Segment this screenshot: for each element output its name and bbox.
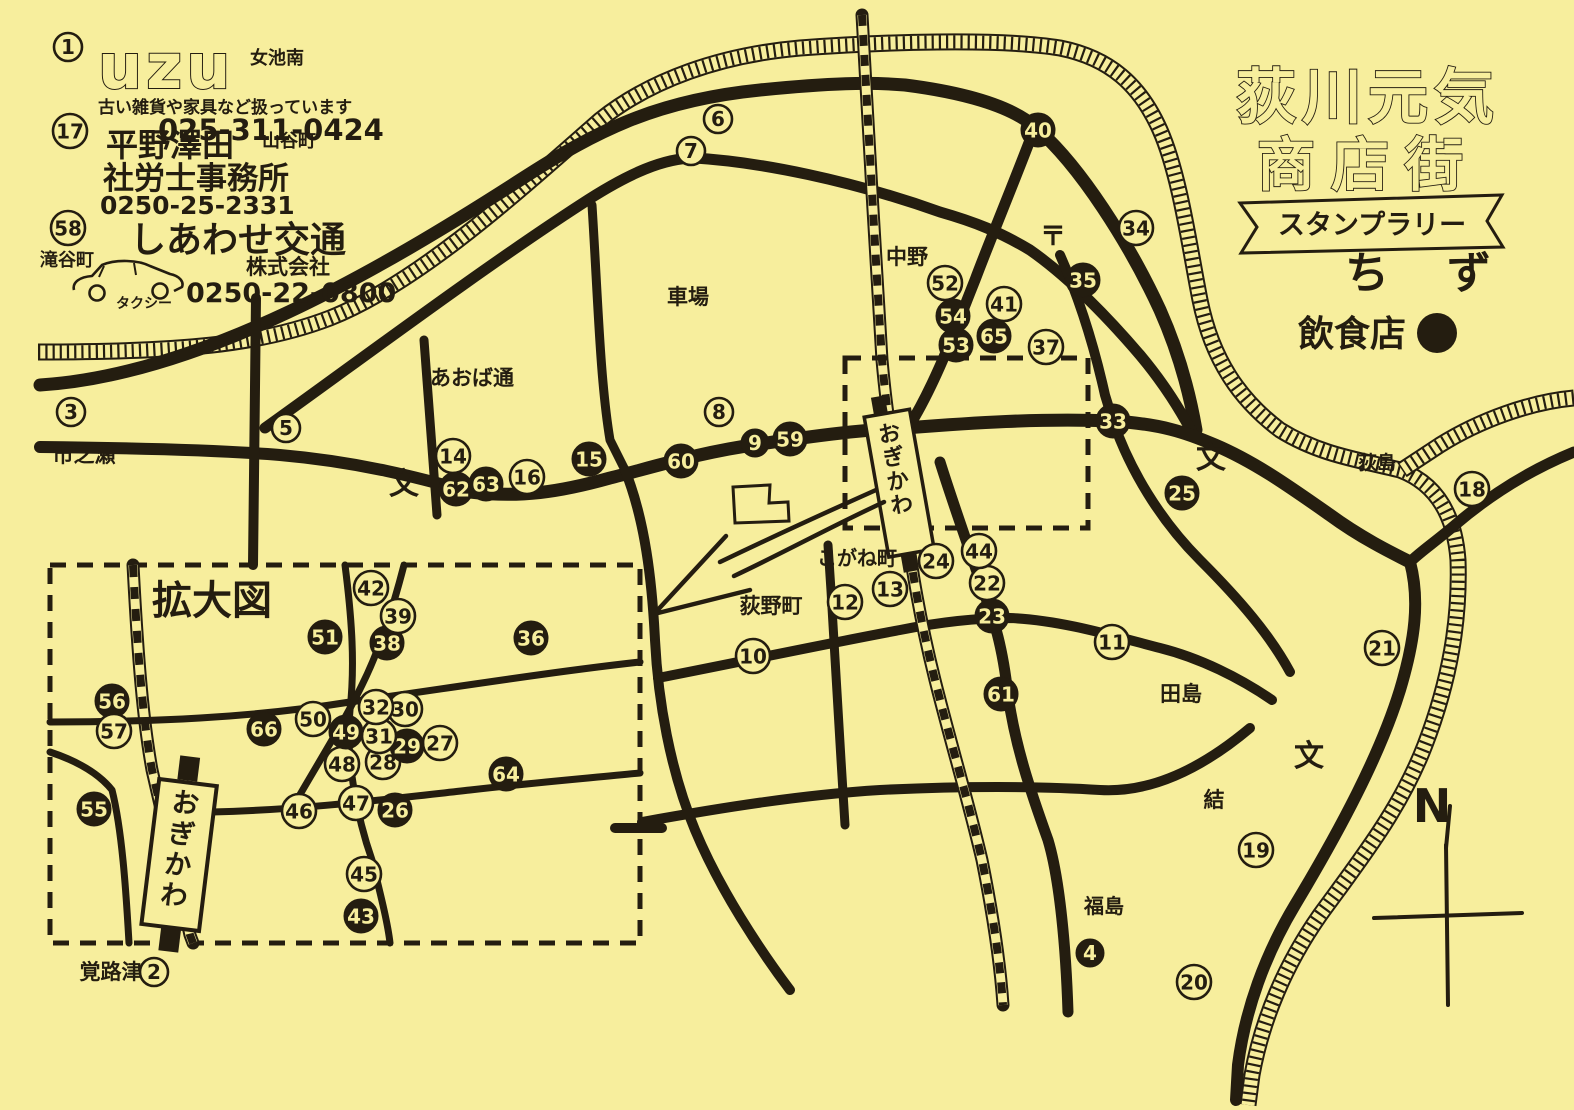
map-marker-26[interactable]: 26 — [378, 793, 412, 827]
place-label-10: 荻島 — [1358, 451, 1396, 474]
map-marker-40[interactable]: 40 — [1021, 113, 1055, 147]
map-marker-11[interactable]: 11 — [1095, 625, 1129, 659]
svg-text:39: 39 — [384, 605, 412, 629]
place-label-0: 市之瀬 — [53, 443, 116, 467]
map-marker-18[interactable]: 18 — [1455, 472, 1489, 506]
map-marker-14[interactable]: 14 — [436, 439, 470, 473]
svg-text:34: 34 — [1122, 217, 1150, 241]
svg-text:25: 25 — [1168, 482, 1196, 506]
svg-text:53: 53 — [942, 334, 970, 358]
svg-text:60: 60 — [667, 450, 695, 474]
map-marker-44[interactable]: 44 — [962, 534, 996, 568]
ad-shiawase-kotsu: しあわせ交通 株式会社 滝谷町 0250-22-0800 タクシー — [40, 219, 396, 312]
svg-text:43: 43 — [347, 905, 375, 929]
svg-text:6: 6 — [711, 107, 725, 131]
legend-label: 飲食店 — [1298, 314, 1406, 355]
svg-text:33: 33 — [1099, 410, 1127, 434]
legend: 飲食店 — [1298, 313, 1457, 355]
svg-text:35: 35 — [1069, 269, 1097, 293]
svg-text:30: 30 — [391, 698, 419, 722]
svg-text:22: 22 — [973, 572, 1001, 596]
ad3-phone: 0250-22-0800 — [186, 278, 396, 309]
place-label-7: 田島 — [1160, 682, 1202, 706]
map-marker-1[interactable]: 1 — [54, 33, 82, 61]
map-marker-17[interactable]: 17 — [53, 114, 87, 148]
svg-text:15: 15 — [575, 448, 603, 472]
svg-text:66: 66 — [250, 718, 278, 742]
map-marker-45[interactable]: 45 — [347, 857, 381, 891]
map-marker-49[interactable]: 49 — [329, 715, 363, 749]
map-marker-7[interactable]: 7 — [677, 137, 705, 165]
svg-text:14: 14 — [439, 445, 467, 469]
building-outline — [733, 485, 789, 523]
svg-text:11: 11 — [1098, 631, 1126, 655]
map-marker-39[interactable]: 39 — [381, 599, 415, 633]
map-marker-58[interactable]: 58 — [51, 211, 85, 245]
map-marker-23[interactable]: 23 — [975, 599, 1009, 633]
banner-text: スタンプラリー — [1278, 210, 1466, 241]
map-marker-41[interactable]: 41 — [987, 287, 1021, 321]
svg-text:5: 5 — [279, 416, 293, 440]
place-label-15: 拡大図 — [152, 578, 272, 624]
map-marker-37[interactable]: 37 — [1029, 330, 1063, 364]
map-marker-22[interactable]: 22 — [970, 566, 1004, 600]
svg-text:32: 32 — [362, 696, 390, 720]
svg-text:27: 27 — [426, 732, 454, 756]
stamp-rally-map-page: おぎかわ おぎかわ 荻川元気 商店街 スタンプラリー ちず 飲食店 N uzu … — [0, 0, 1574, 1110]
map-marker-3[interactable]: 3 — [57, 398, 85, 426]
ad3-line2: 株式会社 — [246, 255, 330, 279]
svg-text:16: 16 — [513, 466, 541, 490]
place-label-13: 文 — [1196, 441, 1226, 476]
map-marker-2[interactable]: 2 — [140, 958, 168, 986]
ad2-area: 山谷町 — [262, 131, 316, 152]
place-label-6: 荻野町 — [740, 594, 803, 618]
ad-uzu-area: 女池南 — [250, 47, 304, 69]
svg-text:23: 23 — [978, 605, 1006, 629]
ad2-phone: 0250-25-2331 — [100, 191, 295, 220]
map-marker-36[interactable]: 36 — [514, 621, 548, 655]
map-marker-66[interactable]: 66 — [247, 712, 281, 746]
map-marker-52[interactable]: 52 — [928, 266, 962, 300]
map-marker-25[interactable]: 25 — [1165, 476, 1199, 510]
place-label-11: 覚路津 — [80, 960, 143, 984]
place-label-1: あおば通 — [430, 366, 514, 390]
svg-text:10: 10 — [739, 645, 767, 669]
place-label-4: 〒 — [1040, 222, 1066, 252]
map-marker-5[interactable]: 5 — [272, 414, 300, 442]
map-marker-62[interactable]: 62 — [439, 472, 473, 506]
map-marker-9[interactable]: 9 — [741, 429, 769, 457]
map-marker-32[interactable]: 32 — [359, 690, 393, 724]
map-marker-6[interactable]: 6 — [704, 105, 732, 133]
restaurant-legend-icon — [1417, 313, 1457, 353]
map-marker-16[interactable]: 16 — [510, 460, 544, 494]
ad3-area: 滝谷町 — [40, 249, 94, 271]
svg-text:58: 58 — [54, 217, 82, 241]
map-marker-24[interactable]: 24 — [919, 544, 953, 578]
place-label-3: 中野 — [886, 245, 928, 269]
svg-text:54: 54 — [939, 305, 967, 329]
map-word: ちず — [1345, 248, 1549, 299]
svg-text:44: 44 — [965, 540, 993, 564]
svg-text:13: 13 — [876, 578, 904, 602]
map-marker-15[interactable]: 15 — [572, 442, 606, 476]
map-canvas: おぎかわ おぎかわ 荻川元気 商店街 スタンプラリー ちず 飲食店 N uzu … — [0, 0, 1574, 1110]
svg-text:19: 19 — [1242, 839, 1270, 863]
svg-text:2: 2 — [147, 960, 161, 984]
svg-text:24: 24 — [922, 550, 950, 574]
map-marker-60[interactable]: 60 — [664, 444, 698, 478]
map-marker-4[interactable]: 4 — [1076, 939, 1104, 967]
svg-text:17: 17 — [56, 120, 84, 144]
svg-text:56: 56 — [98, 690, 126, 714]
svg-text:61: 61 — [987, 683, 1015, 707]
svg-text:26: 26 — [381, 799, 409, 823]
map-marker-42[interactable]: 42 — [354, 571, 388, 605]
map-marker-27[interactable]: 27 — [423, 726, 457, 760]
svg-text:46: 46 — [285, 800, 313, 824]
svg-text:51: 51 — [311, 626, 339, 650]
map-marker-43[interactable]: 43 — [344, 899, 378, 933]
map-marker-64[interactable]: 64 — [489, 757, 523, 791]
map-marker-12[interactable]: 12 — [828, 585, 862, 619]
svg-text:41: 41 — [990, 293, 1018, 317]
ad2-name: 平野澤田 — [106, 126, 234, 164]
map-marker-61[interactable]: 61 — [984, 677, 1018, 711]
place-label-12: 文 — [389, 467, 419, 502]
map-marker-8[interactable]: 8 — [705, 398, 733, 426]
svg-text:48: 48 — [328, 753, 356, 777]
svg-text:63: 63 — [472, 473, 500, 497]
map-marker-19[interactable]: 19 — [1239, 833, 1273, 867]
map-marker-63[interactable]: 63 — [469, 467, 503, 501]
map-marker-55[interactable]: 55 — [77, 792, 111, 826]
map-marker-48[interactable]: 48 — [325, 747, 359, 781]
svg-text:1: 1 — [61, 35, 75, 59]
svg-text:9: 9 — [748, 431, 762, 455]
compass-north-label: N — [1413, 779, 1452, 833]
svg-text:42: 42 — [357, 577, 385, 601]
map-marker-59[interactable]: 59 — [773, 422, 807, 456]
svg-text:12: 12 — [831, 591, 859, 615]
svg-text:62: 62 — [442, 478, 470, 502]
svg-text:31: 31 — [365, 725, 393, 749]
title-line1: 荻川元気 — [1236, 63, 1500, 133]
svg-text:29: 29 — [393, 735, 421, 759]
map-marker-57[interactable]: 57 — [97, 714, 131, 748]
map-marker-46[interactable]: 46 — [282, 794, 316, 828]
svg-text:52: 52 — [931, 272, 959, 296]
svg-text:4: 4 — [1083, 941, 1097, 965]
map-marker-35[interactable]: 35 — [1066, 263, 1100, 297]
svg-text:65: 65 — [980, 325, 1008, 349]
map-marker-50[interactable]: 50 — [296, 702, 330, 736]
svg-text:40: 40 — [1024, 119, 1052, 143]
svg-text:47: 47 — [342, 792, 370, 816]
title-block: 荻川元気 商店街 スタンプラリー ちず 飲食店 — [1236, 63, 1549, 355]
svg-text:36: 36 — [517, 627, 545, 651]
svg-text:57: 57 — [100, 720, 128, 744]
map-marker-47[interactable]: 47 — [339, 786, 373, 820]
map-marker-20[interactable]: 20 — [1177, 965, 1211, 999]
svg-text:64: 64 — [492, 763, 520, 787]
map-marker-13[interactable]: 13 — [873, 572, 907, 606]
svg-text:18: 18 — [1458, 478, 1486, 502]
place-label-14: 文 — [1294, 739, 1324, 774]
place-label-8: 結 — [1204, 788, 1225, 812]
svg-text:8: 8 — [712, 400, 726, 424]
map-marker-21[interactable]: 21 — [1365, 631, 1399, 665]
svg-text:49: 49 — [332, 721, 360, 745]
svg-text:20: 20 — [1180, 971, 1208, 995]
svg-text:38: 38 — [373, 632, 401, 656]
svg-text:37: 37 — [1032, 336, 1060, 360]
place-label-5: こがね町 — [817, 546, 897, 570]
svg-text:50: 50 — [299, 708, 327, 732]
svg-text:55: 55 — [80, 798, 108, 822]
svg-text:3: 3 — [64, 400, 78, 424]
svg-text:21: 21 — [1368, 637, 1396, 661]
svg-text:7: 7 — [684, 139, 698, 163]
title-line2: 商店街 — [1257, 131, 1479, 199]
place-label-9: 福島 — [1083, 894, 1124, 918]
map-marker-54[interactable]: 54 — [936, 299, 970, 333]
map-marker-10[interactable]: 10 — [736, 639, 770, 673]
place-label-2: 車場 — [667, 285, 709, 309]
map-marker-33[interactable]: 33 — [1096, 404, 1130, 438]
ad-hirano-sawada: 平野澤田 山谷町 社労士事務所 0250-25-2331 — [100, 126, 316, 220]
svg-text:45: 45 — [350, 863, 378, 887]
map-marker-51[interactable]: 51 — [308, 620, 342, 654]
map-marker-65[interactable]: 65 — [977, 319, 1011, 353]
ad-uzu-name: uzu — [98, 30, 234, 103]
map-marker-34[interactable]: 34 — [1119, 211, 1153, 245]
svg-text:59: 59 — [776, 428, 804, 452]
